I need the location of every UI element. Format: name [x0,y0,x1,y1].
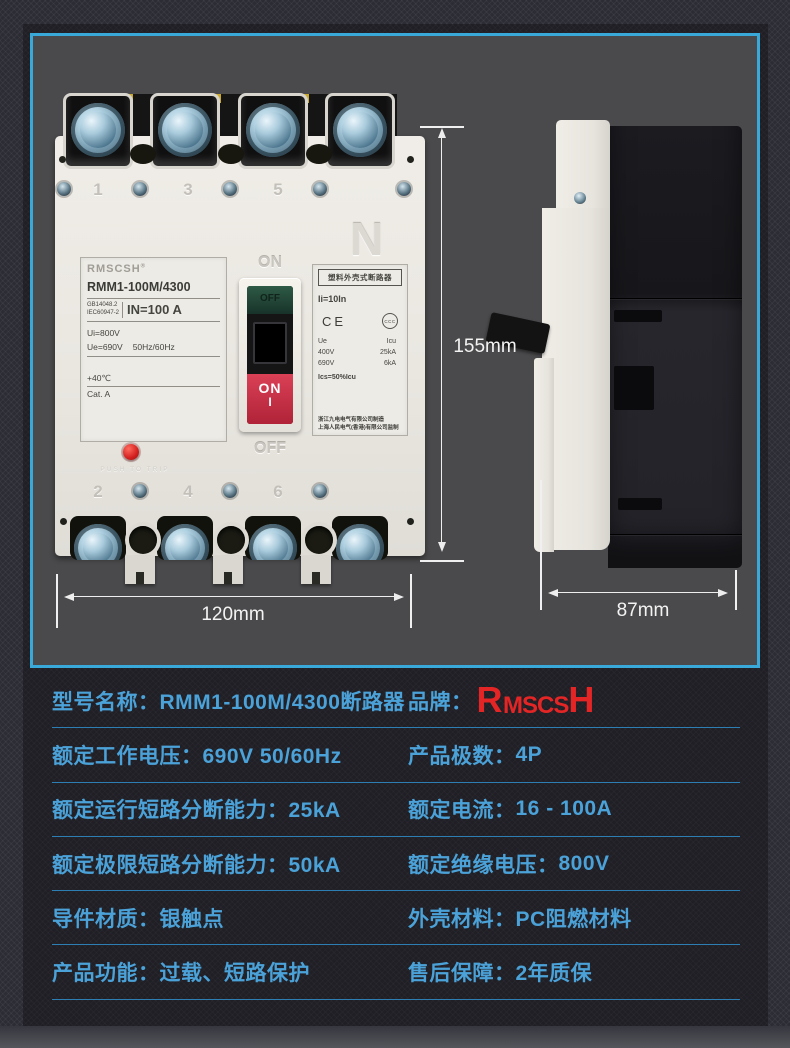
spec-label: 产品功能： [52,962,160,985]
nameplate-model: RMM1-100M/4300 [87,275,220,299]
terminal-screw-icon [158,103,212,157]
screw-icon [574,192,586,204]
terminal-lug [328,96,392,166]
side-front-slab [534,358,554,552]
mounting-foot [125,556,155,584]
dimension-depth-label: 87mm [598,600,688,622]
spec-table: 型号名称：RMM1-100M/4300断路器 品牌： RMSCSH 额定工作电压… [52,674,740,1000]
spec-value: 800V [559,852,610,876]
terminal-screw-icon [333,103,387,157]
manufacturer-lines: 浙江九电电气有限公司制造 上海人民电气(香港)有限公司监制 [318,417,403,432]
spec-model: 型号名称：RMM1-100M/4300断路器 [52,686,408,716]
off-embossed-label: OFF [233,440,307,458]
spec-row-function: 产品功能：过载、短路保护 售后保障：2年质保 [52,945,740,999]
mounting-hole [217,526,245,554]
pole-number: 4 [177,482,199,502]
screw-icon [223,484,237,498]
nameplate-ue: Ue=690V 50Hz/60Hz [87,340,220,357]
screw-icon [57,182,71,196]
mounting-hole [306,144,332,164]
spec-value: 50kA [289,854,341,877]
breaker-side-view [530,120,745,575]
brand-logo: RMSCSH [477,685,595,716]
spec-poles: 产品极数：4P [408,740,740,770]
pole-number: 3 [177,180,199,200]
spec-label: 额定极限短路分断能力： [52,854,289,877]
spec-value: 银触点 [160,908,225,931]
mounting-hole [129,526,157,554]
spec-value: 4P [516,743,543,767]
terminal-screw-icon [246,103,300,157]
dimension-height-label: 155mm [445,336,525,358]
spec-conductor-material: 导件材质：银触点 [52,903,408,933]
nameplate-left: RMSCSH® RMM1-100M/4300 GB14048.2 IEC6094… [80,257,227,442]
spec-label: 额定工作电压： [52,745,203,768]
icu-column: Icu 25kA 6kA [357,337,402,370]
ccc-mark-icon: CCC [382,313,398,329]
nameplate-temperature: +40℃ [87,373,220,387]
spec-label: 额定电流： [408,794,516,824]
spec-rated-current: 额定电流：16 - 100A [408,794,740,824]
nameplate-standards: GB14048.2 IEC60947-2 [87,302,123,318]
spec-ultimate-breaking-capacity: 额定极限短路分断能力：50kA [52,849,408,879]
spec-label: 导件材质： [52,908,160,931]
spec-value: 690V 50/60Hz [203,745,342,768]
spec-working-voltage: 额定工作电压：690V 50/60Hz [52,740,408,770]
toggle-frame: OFF ON I [239,278,301,432]
nameplate-category: Cat. A [87,387,220,399]
spec-row-service-breaking: 额定运行短路分断能力：25kA 额定电流：16 - 100A [52,783,740,837]
spec-value: 2年质保 [516,957,593,987]
mounting-hole [305,526,333,554]
push-to-trip-button [123,444,139,460]
toggle-switch: ON OFF ON I OFF [233,254,307,468]
spec-value: 16 - 100A [516,797,613,821]
breaker-front-view: 1 3 5 N RMSCSH® RMM1-100M/4300 GB14048.2 [55,94,425,588]
spec-shell-material: 外壳材料：PC阻燃材料 [408,903,740,933]
mounting-foot [213,556,243,584]
screw-icon [313,182,327,196]
dimension-width-label: 120mm [163,604,303,626]
ce-mark-icon: CE [322,314,346,329]
dimension-depth-line [557,592,719,593]
bottom-terminal [332,516,388,560]
nameplate-ics: Ics=50%Icu [318,374,402,381]
spec-value: 过载、短路保护 [160,962,311,985]
screw-icon [133,182,147,196]
off-window: OFF [247,286,293,314]
terminal-lug [241,96,305,166]
spec-warranty: 售后保障：2年质保 [408,957,740,987]
dimension-width-line [73,596,395,597]
screw-icon [223,182,237,196]
screw-icon [313,484,327,498]
screw-icon [133,484,147,498]
dimension-height-line [441,136,442,542]
side-body-dark [608,126,742,568]
mounting-hole [130,144,156,164]
ue-column: Ue 400V 690V [318,337,357,370]
spec-row-model: 型号名称：RMM1-100M/4300断路器 品牌： RMSCSH [52,674,740,728]
nameplate-brand: RMSCSH® [87,263,220,275]
spec-service-breaking-capacity: 额定运行短路分断能力：25kA [52,794,408,824]
spec-row-voltage: 额定工作电压：690V 50/60Hz 产品极数：4P [52,728,740,782]
pole-number: 1 [87,180,109,200]
side-front-slab [556,120,610,220]
page-background: 1 3 5 N RMSCSH® RMM1-100M/4300 GB14048.2 [0,0,790,1048]
bottom-terminal [157,516,213,560]
spec-value: PC阻燃材料 [516,903,632,933]
product-photo-box: 1 3 5 N RMSCSH® RMM1-100M/4300 GB14048.2 [30,33,760,668]
nameplate-right: 塑料外壳式断路器 Ii=10In CE CCC Ue 400V 690V I [312,264,408,436]
spec-label: 外壳材料： [408,903,516,933]
on-embossed-label: ON [233,254,307,272]
spec-label: 型号名称： [52,691,160,714]
spec-row-ultimate-breaking: 额定极限短路分断能力：50kA 额定绝缘电压：800V [52,837,740,891]
spec-label: 额定运行短路分断能力： [52,799,289,822]
nameplate-instantaneous: Ii=10In [318,294,402,304]
toggle-handle [247,314,293,374]
spec-label: 额定绝缘电压： [408,849,559,879]
neutral-pole-mark: N [350,212,383,266]
terminal-screw-icon [71,103,125,157]
spec-brand: 品牌： RMSCSH [408,685,740,716]
spec-label: 品牌： [408,686,473,716]
spec-value: 25kA [289,799,341,822]
mounting-hole [218,144,244,164]
screw-icon [397,182,411,196]
spec-label: 售后保障： [408,957,516,987]
terminal-lug [153,96,217,166]
terminal-lug [66,96,130,166]
nameplate-ui: Ui=800V [87,322,220,340]
nameplate-rated-current: IN=100 A [127,302,182,317]
nameplate-title: 塑料外壳式断路器 [318,269,402,286]
bottom-terminal [245,516,301,560]
spec-product-function: 产品功能：过载、短路保护 [52,957,408,987]
spec-row-materials: 导件材质：银触点 外壳材料：PC阻燃材料 [52,891,740,945]
pole-number: 6 [267,482,289,502]
on-indicator: ON I [247,374,293,424]
pole-number: 2 [87,482,109,502]
mounting-foot [301,556,331,584]
spec-value: RMM1-100M/4300断路器 [160,691,405,714]
bottom-terminal [70,516,126,560]
bottom-gradient [0,1026,790,1048]
pole-number: 5 [267,180,289,200]
spec-insulation-voltage: 额定绝缘电压：800V [408,849,740,879]
push-to-trip-label: PUSH TO TRIP [70,466,200,473]
spec-label: 产品极数： [408,740,516,770]
